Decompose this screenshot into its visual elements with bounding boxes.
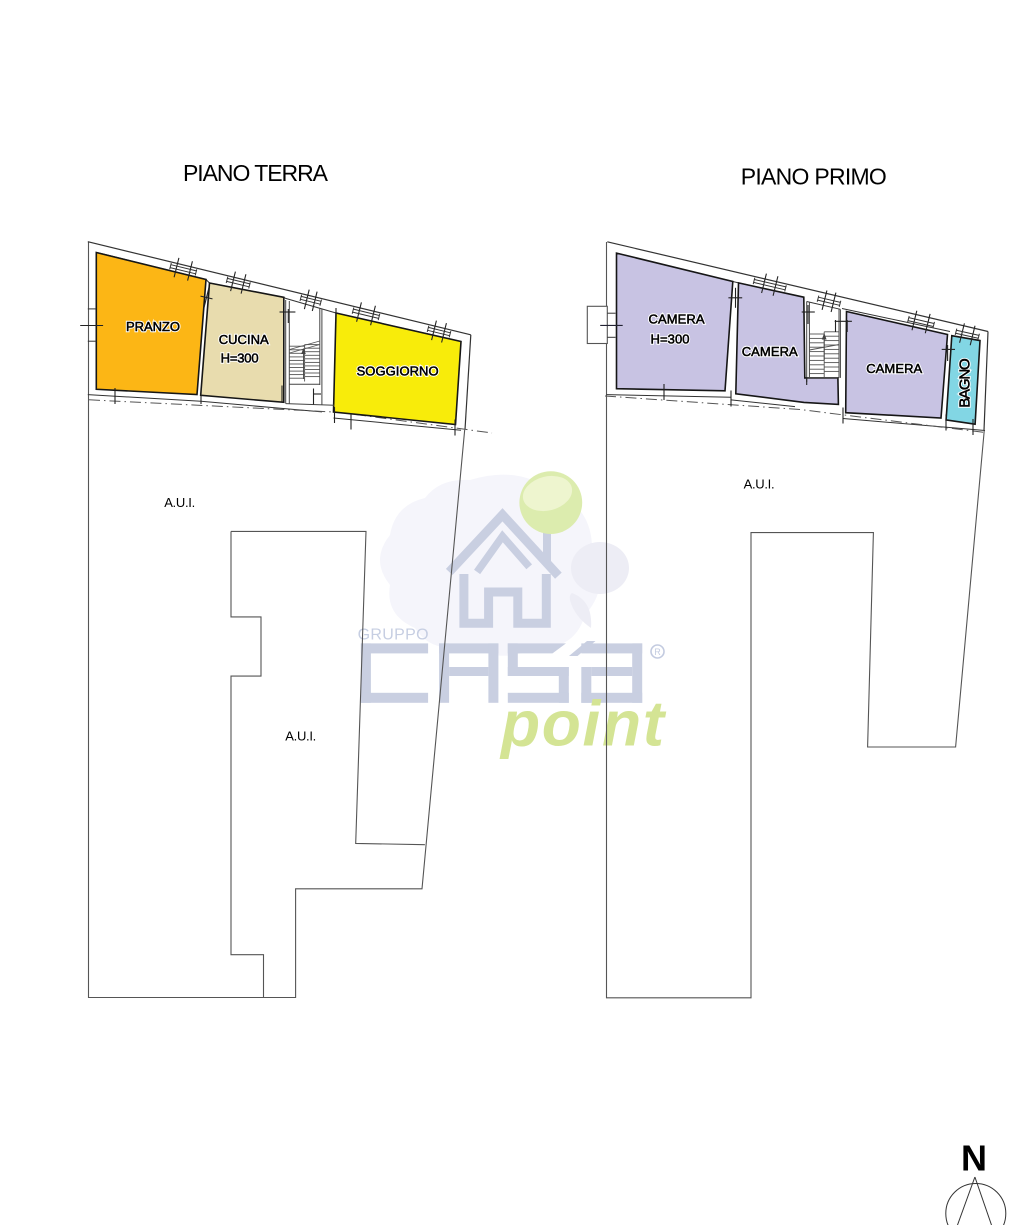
svg-text:GRUPPO: GRUPPO — [358, 626, 429, 643]
svg-text:A.U.I.: A.U.I. — [164, 495, 195, 510]
svg-text:CAMERA: CAMERA — [649, 312, 705, 327]
svg-text:PRANZO: PRANZO — [126, 319, 180, 334]
svg-text:H=300: H=300 — [651, 331, 690, 346]
svg-text:BAGNO: BAGNO — [957, 358, 974, 408]
svg-text:N: N — [961, 1138, 987, 1179]
svg-text:CAMERA: CAMERA — [742, 344, 798, 359]
svg-text:R: R — [654, 647, 661, 657]
svg-text:SOGGIORNO: SOGGIORNO — [357, 364, 439, 379]
svg-text:H=300: H=300 — [221, 351, 259, 366]
svg-text:CAMERA: CAMERA — [866, 361, 922, 376]
svg-text:A.U.I.: A.U.I. — [285, 729, 316, 744]
svg-text:PIANO TERRA: PIANO TERRA — [183, 160, 329, 186]
svg-text:CUCINA: CUCINA — [219, 332, 269, 347]
svg-text:A.U.I.: A.U.I. — [744, 477, 775, 492]
svg-text:PIANO PRIMO: PIANO PRIMO — [741, 163, 887, 189]
